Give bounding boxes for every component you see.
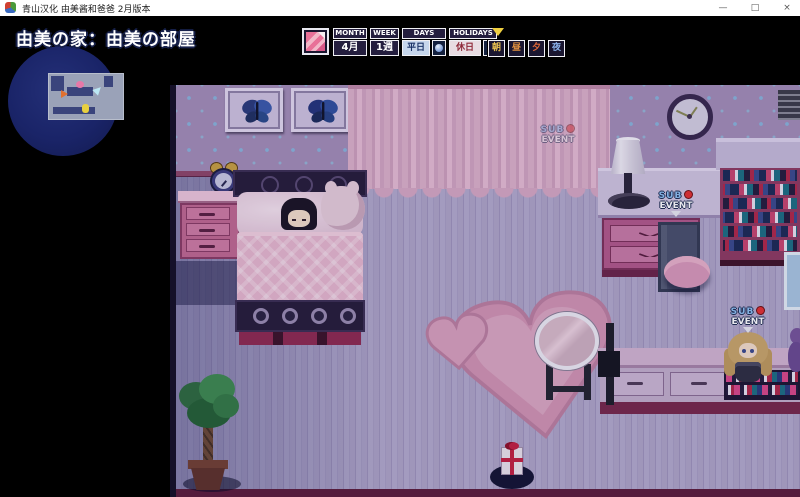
book-row	[723, 240, 797, 251]
window-blinds	[778, 90, 800, 120]
book-row	[723, 170, 797, 181]
minimap-wall-blob	[67, 87, 93, 96]
sub-event-marker-faint[interactable]: SUB EVENT	[532, 124, 584, 145]
holidays-value: 休日	[449, 40, 481, 56]
event-dot-icon	[684, 190, 693, 199]
bookshelf-top	[716, 138, 800, 170]
purple-plush-bear	[786, 328, 800, 382]
balloon-tail-icon	[671, 211, 681, 217]
location-label: 由美の家：由美の部屋	[16, 25, 196, 50]
hud-days: DAYS 平日	[402, 28, 446, 56]
month-header: MONTH	[333, 28, 367, 39]
minimap-wall-blob	[51, 76, 64, 91]
minimap-marker-arrow-cyan	[92, 84, 103, 95]
time-slot-noon: 昼	[508, 40, 525, 57]
drawer	[186, 239, 230, 252]
floor-lamp-base	[598, 351, 620, 377]
month-value: 4月	[333, 40, 367, 56]
drawer	[186, 207, 230, 220]
drawer	[186, 223, 230, 236]
butterfly-frame	[291, 88, 349, 132]
week-value: 1週	[370, 40, 399, 56]
hud-week: WEEK 1週	[370, 28, 399, 56]
bed-base	[239, 332, 361, 345]
round-mirror-table[interactable]	[535, 312, 602, 407]
week-header: WEEK	[370, 28, 399, 39]
game-canvas[interactable]: 由美の家：由美の部屋 MONTH 4月 WEEK 1週 DAYS 平	[0, 16, 800, 497]
plush-toy	[321, 186, 365, 230]
day-phase-icon	[432, 40, 446, 56]
time-slot-morning: 朝	[488, 40, 505, 57]
room-bottom-edge	[176, 489, 800, 497]
window-titlebar: 青山汉化 由美酱和爸爸 2月版本 — □ ×	[0, 0, 800, 16]
close-button[interactable]: ×	[772, 0, 800, 16]
bed[interactable]	[233, 170, 367, 345]
butterfly-icon	[240, 98, 274, 126]
active-time-indicator-icon	[492, 28, 504, 36]
sub-event-marker[interactable]: SUB EVENT	[650, 190, 702, 217]
butterfly-frame	[225, 88, 283, 132]
nightstand-shadow	[176, 261, 238, 305]
minimap-marker-player	[82, 104, 89, 113]
time-slot-night: 夜	[548, 40, 565, 57]
minimap-marker-arrow-orange	[61, 90, 68, 98]
bookshelf[interactable]	[720, 168, 800, 260]
blonde-girl-character[interactable]	[726, 332, 770, 386]
minimize-button[interactable]: —	[708, 0, 738, 16]
app-icon	[5, 2, 16, 13]
book-row	[726, 385, 798, 395]
calendar-icon	[302, 28, 329, 55]
book-row	[723, 198, 797, 209]
days-header: DAYS	[402, 28, 446, 39]
gift-item[interactable]	[490, 445, 534, 491]
book-row	[723, 184, 797, 195]
book-row	[723, 212, 797, 223]
table-lamp[interactable]	[600, 137, 656, 213]
time-slot-evening: 夕	[528, 40, 545, 57]
pink-pouf	[664, 256, 710, 294]
potted-plant	[173, 372, 243, 497]
wall-clock	[667, 94, 713, 140]
minimap	[8, 46, 124, 158]
drawer	[670, 372, 728, 396]
bedroom-scene: SUB EVENT SUB EVENT SUB EVENT	[170, 85, 800, 497]
butterfly-icon	[306, 98, 340, 126]
sleeping-character[interactable]	[281, 198, 317, 236]
holidays-header: HOLIDAYS	[449, 28, 497, 39]
minimap-room	[48, 73, 124, 120]
bed-blanket	[237, 232, 363, 304]
book-row	[723, 226, 797, 237]
days-value: 平日	[402, 40, 430, 56]
event-dot-icon	[756, 306, 765, 315]
hud-month: MONTH 4月	[333, 28, 367, 56]
bed-footboard	[235, 300, 365, 332]
minimap-marker-heart	[76, 81, 84, 88]
wall-mirror	[784, 252, 800, 310]
event-dot-icon	[566, 124, 575, 133]
balloon-tail-icon	[743, 327, 753, 333]
sub-event-marker[interactable]: SUB EVENT	[722, 306, 774, 333]
calendar-hud: MONTH 4月 WEEK 1週 DAYS 平日 HOLIDAYS 休日 朝 昼…	[302, 27, 574, 58]
window-title: 青山汉化 由美酱和爸爸 2月版本	[22, 2, 150, 15]
long-dresser-base	[600, 402, 800, 414]
maximize-button[interactable]: □	[740, 0, 770, 16]
minimap-wall-blob	[104, 76, 113, 87]
